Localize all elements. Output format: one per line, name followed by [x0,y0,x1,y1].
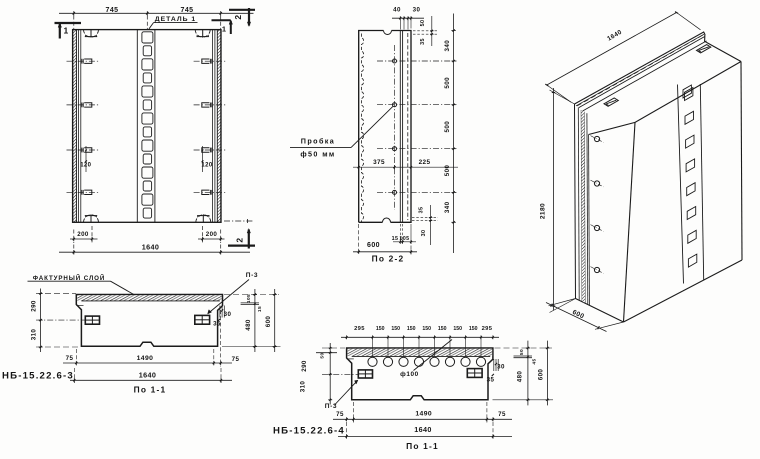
svg-text:500: 500 [444,121,451,133]
svg-text:НБ-15.22.6-3: НБ-15.22.6-3 [2,371,74,382]
svg-text:35: 35 [487,377,495,384]
svg-text:480: 480 [245,319,252,331]
svg-text:480: 480 [516,371,523,383]
svg-text:745: 745 [181,7,194,14]
svg-text:310: 310 [31,329,38,341]
svg-text:150: 150 [453,326,462,332]
svg-text:40: 40 [393,7,401,14]
svg-text:150: 150 [407,326,416,332]
svg-text:30: 30 [224,311,232,318]
svg-text:2180: 2180 [540,203,547,219]
svg-text:15: 15 [392,236,399,242]
svg-text:120: 120 [201,163,212,169]
svg-text:1: 1 [64,26,69,36]
svg-text:120: 120 [80,163,91,169]
svg-text:2: 2 [235,237,245,242]
svg-text:По 1-1: По 1-1 [134,385,167,395]
svg-text:150: 150 [391,326,400,332]
svg-text:310: 310 [299,381,306,393]
svg-text:ф100: ф100 [400,371,419,378]
svg-text:30: 30 [413,7,421,14]
svg-text:Пробка: Пробка [301,136,335,145]
svg-text:150: 150 [422,326,431,332]
svg-text:15: 15 [257,306,263,312]
svg-text:По 1-1: По 1-1 [406,441,439,451]
svg-text:745: 745 [106,7,119,14]
svg-text:75: 75 [66,355,74,362]
svg-text:105: 105 [246,294,252,303]
svg-text:150: 150 [376,326,385,332]
svg-text:ФАКТУРНЫЙ СЛОЙ: ФАКТУРНЫЙ СЛОЙ [33,274,106,282]
svg-text:75: 75 [498,411,506,418]
svg-text:500: 500 [444,77,451,89]
svg-text:50: 50 [320,352,326,358]
svg-text:75: 75 [232,356,240,363]
svg-text:150: 150 [438,326,447,332]
svg-text:200: 200 [77,231,89,238]
svg-text:225: 225 [419,159,431,166]
svg-text:290: 290 [31,300,38,312]
svg-text:600: 600 [538,369,545,381]
svg-text:1640: 1640 [142,242,160,251]
svg-text:150: 150 [469,326,478,332]
svg-text:340: 340 [444,201,451,213]
svg-text:375: 375 [373,159,385,166]
svg-text:290: 290 [301,360,308,372]
svg-text:2: 2 [233,14,243,19]
svg-text:1640: 1640 [414,425,432,434]
svg-text:50: 50 [420,20,426,27]
svg-text:НБ-15.22.6-4: НБ-15.22.6-4 [273,426,345,437]
svg-text:1: 1 [222,25,227,34]
svg-text:35: 35 [213,321,221,328]
svg-text:295: 295 [354,326,365,332]
svg-text:1490: 1490 [415,410,432,417]
svg-text:340: 340 [444,40,451,52]
svg-text:600: 600 [265,316,272,328]
svg-text:35: 35 [420,38,426,45]
svg-text:295: 295 [482,326,493,332]
svg-text:П-3: П-3 [246,272,258,279]
svg-text:1640: 1640 [139,370,157,379]
svg-text:35: 35 [419,207,425,214]
svg-text:200: 200 [206,231,218,238]
svg-text:50: 50 [519,349,525,355]
svg-text:30: 30 [497,364,505,371]
svg-text:30: 30 [421,230,427,237]
svg-text:600: 600 [367,242,380,249]
svg-text:45: 45 [532,358,538,364]
svg-text:75: 75 [336,411,344,418]
svg-text:500: 500 [444,165,451,177]
svg-text:105: 105 [399,236,409,242]
svg-text:ф50 мм: ф50 мм [300,149,335,158]
svg-text:1490: 1490 [137,355,154,362]
svg-text:По 2-2: По 2-2 [372,254,405,264]
